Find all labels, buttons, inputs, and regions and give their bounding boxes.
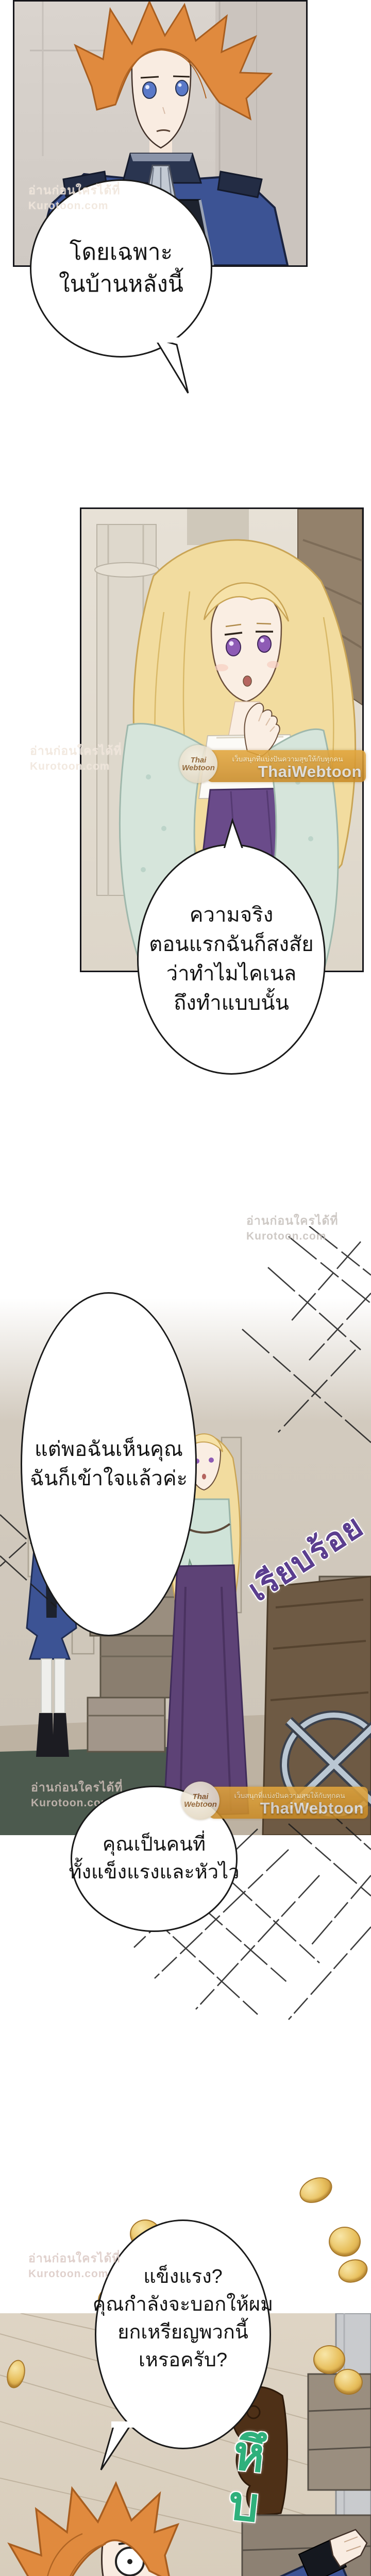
bubble-2-line-1: ความจริง xyxy=(190,901,274,930)
bubble-2-line-3: ว่าทำไมไคเนล xyxy=(166,959,297,989)
watermark-text: อ่านก่อนใครได้ที่ xyxy=(28,2249,121,2268)
bubble-5-line-4: เหรอครับ? xyxy=(139,2347,227,2375)
bubble-3-line-2: ฉันก็เข้าใจแล้วค่ะ xyxy=(30,1464,188,1494)
bubble-5-tail xyxy=(99,2421,135,2473)
gold-coin xyxy=(335,2256,371,2286)
speech-bubble-3: แต่พอฉันเห็นคุณ ฉันก็เข้าใจแล้วค่ะ xyxy=(21,1292,197,1636)
thaiwebtoon-badge: Thai Webtoon เว็บสนุกที่แบ่งปันความสุขให… xyxy=(181,1782,368,1822)
webtoon-strip: อ่านก่อนใครได้ที่ Kurotoon.com โดยเฉพาะ … xyxy=(0,0,371,2576)
speech-bubble-1: โดยเฉพาะ ในบ้านหลังนี้ xyxy=(30,179,212,358)
bubble-3-line-1: แต่พอฉันเห็นคุณ xyxy=(35,1435,183,1464)
bubble-4-line-1: คุณเป็นคนที่ xyxy=(103,1831,206,1859)
bubble-1-line-1: โดยเฉพาะ xyxy=(70,236,173,268)
bubble-2-line-2: ตอนแรกฉันก็สงสัย xyxy=(149,930,313,959)
gold-coin xyxy=(329,2227,361,2257)
bubble-4-line-2: ทั้งแข็งแรงและหัวไว xyxy=(69,1859,239,1887)
thaiwebtoon-logo-icon: Thai Webtoon xyxy=(179,745,217,783)
bubble-5-line-1: แข็งแรง? xyxy=(143,2263,223,2291)
gold-coin xyxy=(295,2173,336,2208)
gold-coin xyxy=(313,2345,345,2374)
bubble-2-line-4: ถึงทำแบบนั้น xyxy=(174,989,289,1018)
sfx-grunt-bottom: บ xyxy=(226,2478,262,2530)
sfx-grunt-top: หึ xyxy=(231,2428,267,2481)
badge-brand: ThaiWebtoon xyxy=(258,762,362,781)
thaiwebtoon-badge: Thai Webtoon เว็บสนุกที่แบ่งปันความสุขให… xyxy=(179,745,366,785)
bubble-1-tail xyxy=(152,337,193,397)
bubble-5-line-2: คุณกำลังจะบอกให้ผม xyxy=(93,2291,273,2319)
bubble-2-tail xyxy=(219,818,248,854)
speech-bubble-5: แข็งแรง? คุณกำลังจะบอกให้ผม ยกเหรียญพวกน… xyxy=(95,2219,271,2449)
thaiwebtoon-logo-icon: Thai Webtoon xyxy=(181,1782,220,1820)
bubble-1-line-2: ในบ้านหลังนี้ xyxy=(59,268,183,300)
bubble-5-line-3: ยกเหรียญพวกนี้ xyxy=(117,2319,248,2347)
badge-brand: ThaiWebtoon xyxy=(260,1799,364,1818)
speech-bubble-2: ความจริง ตอนแรกฉันก็สงสัย ว่าทำไมไคเนล ถ… xyxy=(137,844,326,1075)
